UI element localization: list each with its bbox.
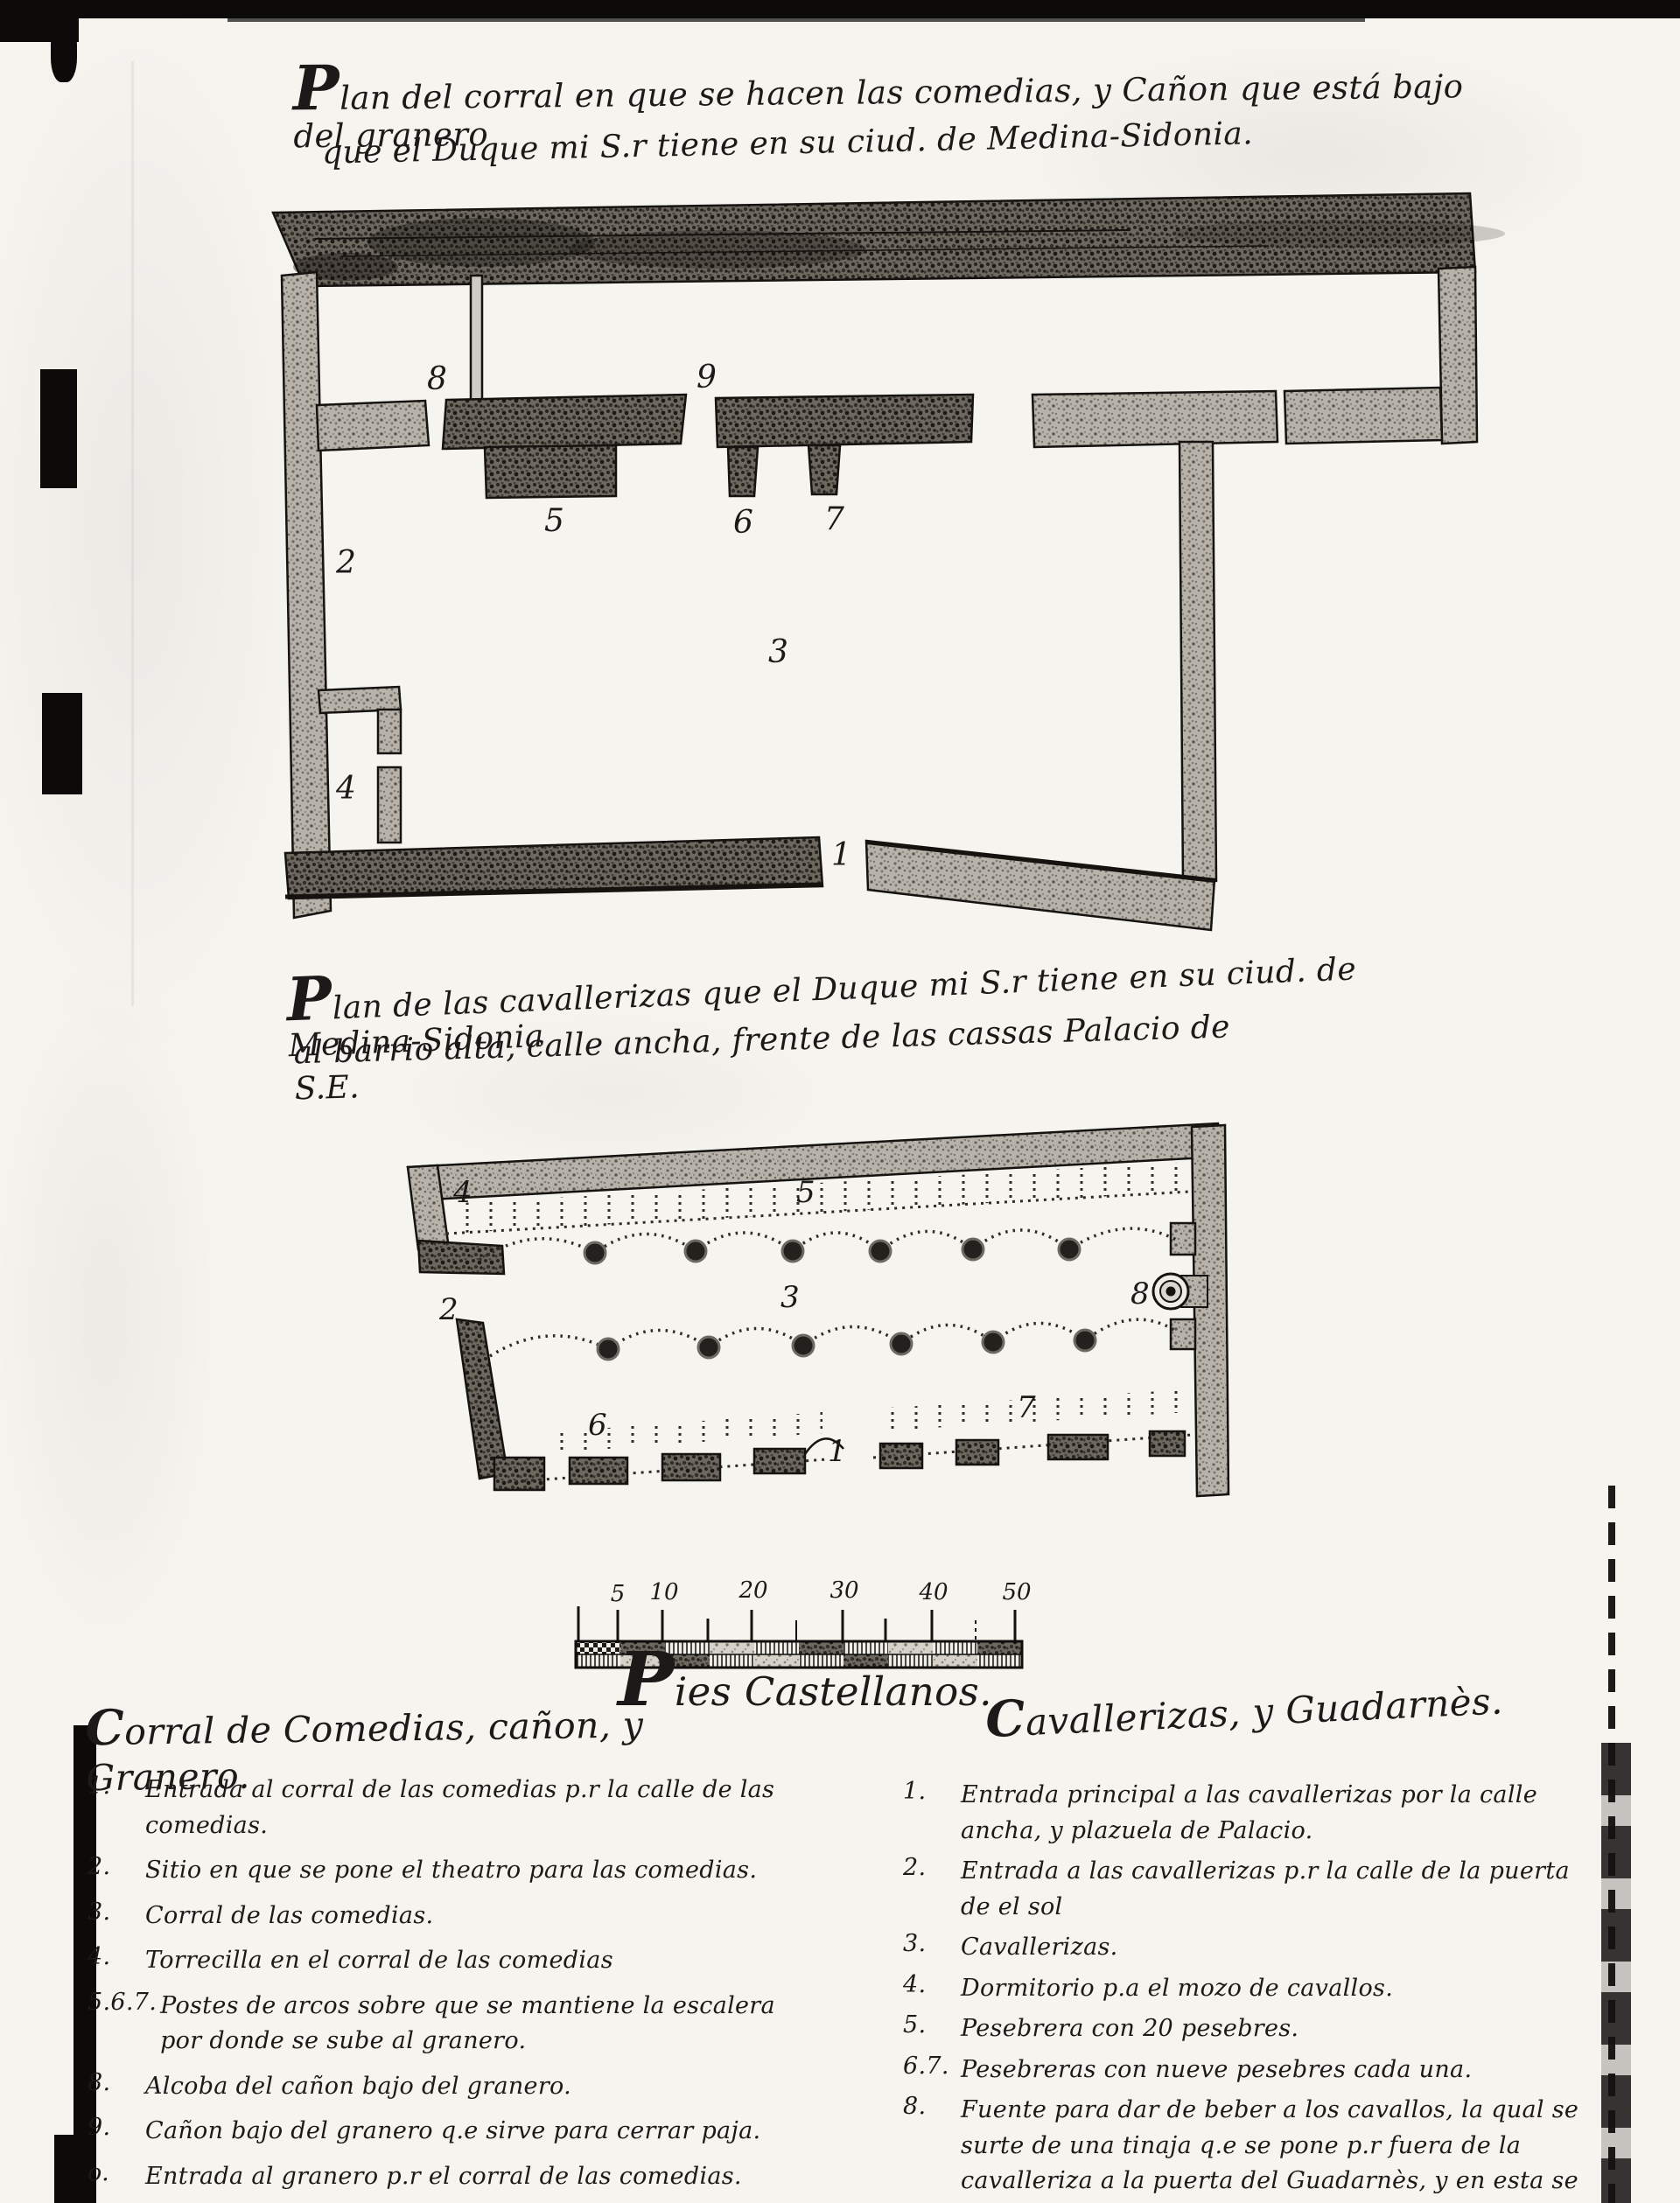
- plan2-label-6: 6: [588, 1408, 607, 1443]
- plan2-columns: [584, 1239, 1095, 1360]
- scale-label-10: 10: [649, 1579, 678, 1605]
- plan2-lower-left-wall: [457, 1319, 507, 1479]
- legend-item: 6.7. Pesebreras con nueve pesebres cada …: [903, 2053, 1603, 2088]
- legend-item-number: 4.: [903, 1971, 961, 1998]
- plan2-label-7: 7: [1017, 1390, 1036, 1425]
- legend-item-text: Alcoba del cañon bajo del granero.: [145, 2069, 796, 2105]
- legend-item: 1. Entrada al corral de las comedias p.r…: [87, 1773, 796, 1843]
- legend-item-text: Sitio en que se pone el theatro para las…: [145, 1853, 796, 1889]
- legend-left: 1. Entrada al corral de las comedias p.r…: [87, 1773, 796, 2203]
- legend-item: 5. Pesebrera con 20 pesebres.: [903, 2011, 1603, 2047]
- plan2-label-5: 5: [796, 1175, 815, 1210]
- plan1-label-2: 2: [335, 545, 356, 581]
- scale-label-5: 5: [611, 1581, 626, 1607]
- plan1-walls: [273, 193, 1505, 930]
- legend-item-text: Cavallerizas.: [961, 1930, 1603, 1966]
- paper-crease: [131, 61, 134, 1006]
- scan-blot-left-bottom: [54, 2135, 87, 2203]
- legend-item-number: 6.7.: [903, 2053, 961, 2080]
- legend-item-number: 4.: [87, 1943, 145, 1970]
- legend-item-number: 1.: [87, 1773, 145, 1800]
- legend-item-number: o.: [87, 2159, 145, 2186]
- plan1-pier5-head: [443, 395, 686, 449]
- plan-corral-de-comedias: 8 9 5 6 7 2 3 4 1: [262, 188, 1575, 949]
- plan1-label-3: 3: [768, 634, 788, 670]
- plan1-label-8: 8: [427, 361, 447, 397]
- scan-tab-left-1: [40, 369, 77, 488]
- legend-item-text: Fuente para dar de beber a los cavallos,…: [961, 2093, 1603, 2203]
- plan1-label-6: 6: [733, 505, 753, 541]
- plan1-mid-wall-1: [317, 401, 429, 451]
- legend-item-number: 3.: [903, 1930, 961, 1957]
- plan2-label-8: 8: [1130, 1276, 1150, 1311]
- plan2-label-3: 3: [780, 1280, 800, 1315]
- legend-item-text: Cañon bajo del granero q.e sirve para ce…: [145, 2114, 796, 2150]
- legend-right-heading: Cavallerizas, y Guadarnès.: [984, 1661, 1651, 1749]
- plan2-right-pier-b: [1171, 1319, 1195, 1349]
- legend-item-number: 8.: [903, 2093, 961, 2120]
- legend-item-text: Entrada al corral de las comedias p.r la…: [145, 1773, 796, 1843]
- plan1-corral-right-wall: [1179, 442, 1216, 883]
- plan1-mid-wall-3: [1032, 391, 1277, 447]
- plan1-label-1: 1: [831, 837, 851, 873]
- legend-item-text: Dormitorio p.a el mozo de cavallos.: [961, 1971, 1603, 2007]
- plan1-label-4: 4: [335, 771, 356, 807]
- legend-item-number: 9.: [87, 2114, 145, 2141]
- legend-item: o. Entrada al granero p.r el corral de l…: [87, 2159, 796, 2195]
- scale-label-30: 30: [829, 1577, 858, 1604]
- plan2-label-1: 1: [828, 1434, 847, 1469]
- plan1-left-wall: [282, 272, 331, 918]
- plan2-left-pier: [418, 1241, 504, 1274]
- legend-item: 8. Fuente para dar de beber a los cavall…: [903, 2093, 1603, 2203]
- plan1-mid-wall-2: [716, 395, 973, 447]
- legend-item-text: Pesebreras con nueve pesebres cada una.: [961, 2053, 1603, 2088]
- legend-item-text: Entrada a las cavallerizas p.r la calle …: [961, 1854, 1603, 1925]
- plan2-right-wall: [1192, 1125, 1228, 1496]
- legend-item-number: 3.: [87, 1899, 145, 1926]
- plan2-fountain: [1153, 1274, 1207, 1309]
- legend-item-number: 8.: [87, 2069, 145, 2096]
- plan1-bottom-wall-right: [866, 841, 1214, 930]
- legend-item: 3. Cavallerizas.: [903, 1930, 1603, 1966]
- legend-item: 3. Corral de las comedias.: [87, 1899, 796, 1934]
- plan1-pier6: [728, 447, 758, 496]
- scan-blot-top-left: [51, 21, 77, 82]
- scale-label-40: 40: [918, 1579, 948, 1605]
- legend-item: 2. Entrada a las cavallerizas p.r la cal…: [903, 1854, 1603, 1925]
- legend-item-text: Entrada principal a las cavallerizas por…: [961, 1778, 1603, 1849]
- plan1-label-9: 9: [696, 360, 717, 395]
- legend-item-text: Corral de las comedias.: [145, 1899, 796, 1934]
- scan-edge-top-shadow: [227, 16, 1365, 22]
- plan2-label-2: 2: [438, 1292, 458, 1327]
- plan2-label-4: 4: [452, 1175, 472, 1210]
- plan1-right-wall-upper: [1438, 267, 1477, 444]
- legend-item-text: Pesebrera con 20 pesebres.: [961, 2011, 1603, 2047]
- legend-item-text: Postes de arcos sobre que se mantiene la…: [160, 1989, 796, 2060]
- legend-item: 9. Cañon bajo del granero q.e sirve para…: [87, 2114, 796, 2150]
- scanned-manuscript-page: Plan del corral en que se hacen las come…: [0, 0, 1680, 2203]
- legend-item: 2. Sitio en que se pone el theatro para …: [87, 1853, 796, 1889]
- legend-item: 5.6.7. Postes de arcos sobre que se mant…: [87, 1989, 796, 2060]
- legend-item-number: 2.: [903, 1854, 961, 1881]
- legend-item-number: 5.: [903, 2011, 961, 2039]
- plan1-mid-wall-4: [1284, 388, 1442, 444]
- scan-tab-left-2: [42, 693, 82, 794]
- scale-label-20: 20: [738, 1577, 767, 1604]
- scale-label-50: 50: [1002, 1579, 1031, 1605]
- legend-item: 4. Dormitorio p.a el mozo de cavallos.: [903, 1971, 1603, 2007]
- plan1-alcoba-divider-wall: [471, 276, 482, 405]
- legend-item-text: Torrecilla en el corral de las comedias: [145, 1943, 796, 1979]
- plan-cavallerizas: 4 5 2 3 8 6 7 1: [385, 1111, 1260, 1531]
- legend-item: 8. Alcoba del cañon bajo del granero.: [87, 2069, 796, 2105]
- legend-item: 1. Entrada principal a las cavallerizas …: [903, 1778, 1603, 1849]
- legend-item: 4. Torrecilla en el corral de las comedi…: [87, 1943, 796, 1979]
- plan1-label-5: 5: [544, 503, 564, 539]
- plan1-torrecilla-wall-b: [378, 767, 401, 843]
- plan1-torrecilla-wall-a: [378, 710, 401, 753]
- plan1-pier7: [808, 445, 840, 494]
- plan1-pier5-foot: [485, 445, 616, 498]
- legend-item-number: 1.: [903, 1778, 961, 1805]
- legend-item-text: Entrada al granero p.r el corral de las …: [145, 2159, 796, 2195]
- legend-item-number: 2.: [87, 1853, 145, 1880]
- legend-right: 1. Entrada principal a las cavallerizas …: [903, 1778, 1603, 2203]
- scan-bar-right-bottom: [1601, 1743, 1631, 2203]
- legend-item-number: 5.6.7.: [87, 1989, 160, 2016]
- plan1-label-7: 7: [824, 501, 844, 537]
- plan2-corner-pier: [494, 1458, 544, 1490]
- scale-tick-labels: 5 10 20 30 40 50: [611, 1577, 1032, 1607]
